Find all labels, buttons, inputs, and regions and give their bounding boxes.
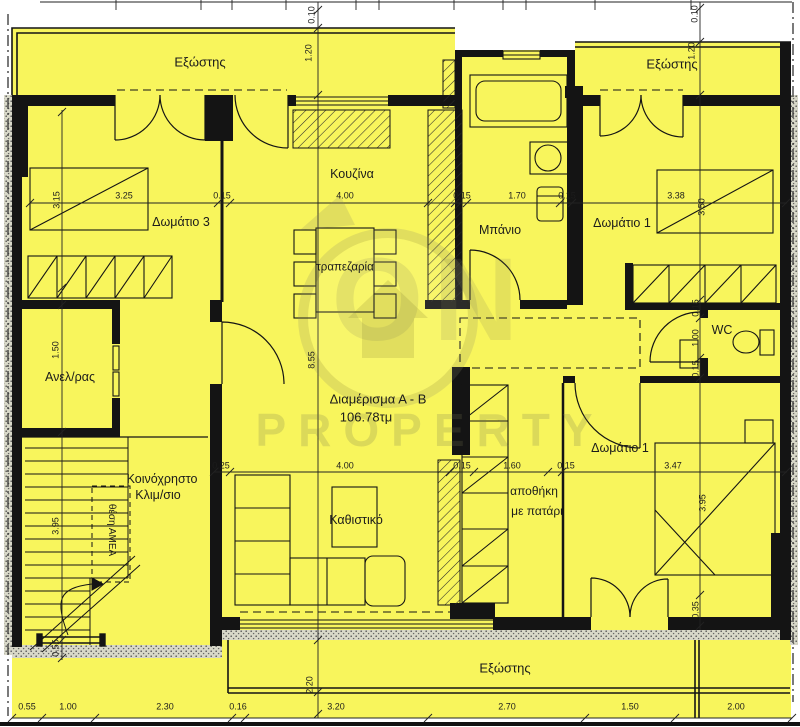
- stairwell-line1-label: Κοινόχρηστο: [127, 473, 198, 486]
- dimension-label: 1.70: [508, 192, 526, 201]
- dimension-label: 1.50: [52, 341, 61, 359]
- dimension-label: 3.50: [698, 198, 707, 216]
- dimension-label: 0.55: [18, 703, 36, 712]
- watermark-on-text: ON: [332, 232, 529, 368]
- storage-line1-label: αποθήκη: [510, 485, 558, 497]
- dimension-label: 2.30: [156, 703, 174, 712]
- dimension-label: 8.55: [308, 351, 317, 369]
- dining-label: τραπεζαρία: [316, 262, 374, 274]
- dimension-label: 3.38: [667, 192, 685, 201]
- watermark-property-text: PROPERTY: [255, 403, 604, 457]
- elevator-label: Ανελ/ρας: [45, 371, 95, 384]
- dimension-label: 3.25: [115, 192, 133, 201]
- dimension-label: 0.15: [692, 299, 701, 317]
- dimension-label: 0.16: [229, 703, 247, 712]
- dimension-label: 0.10: [691, 5, 700, 23]
- dimension-label: 3.95: [699, 494, 708, 512]
- dimension-label: 4.00: [336, 192, 354, 201]
- balcony-top-left-label: Εξώστης: [174, 56, 225, 69]
- dimension-label: 1.00: [692, 329, 701, 347]
- dimension-label: 4.00: [336, 462, 354, 471]
- dimension-label: 3.20: [327, 703, 345, 712]
- storage-shaft: [438, 460, 460, 605]
- stairwell-line2-label: Κλιμ/σιο: [135, 489, 180, 502]
- dimension-label: 1.00: [59, 703, 77, 712]
- dimension-label: 1.50: [621, 703, 639, 712]
- balcony-top-left-area: [12, 28, 455, 95]
- dimension-label: 0.15: [453, 192, 471, 201]
- dimension-label: 2.00: [727, 703, 745, 712]
- dimension-label: 0.15: [558, 192, 576, 201]
- dimension-label: 0.35: [692, 601, 701, 619]
- top-tick-row: [40, 0, 792, 10]
- apartment-area-label: 106.78τμ: [340, 411, 392, 424]
- dimension-label: 1.20: [305, 44, 314, 62]
- dimension-label: 0.10: [308, 6, 317, 24]
- kitchen-label: Κουζίνα: [330, 168, 374, 181]
- dimension-label: 0.15: [453, 462, 471, 471]
- dimension-label: 3.47: [664, 462, 682, 471]
- floor-plan-page: ON PROPERTY ΕξώστηςΕξώστηςΕξώστηςΔωμάτιο…: [0, 0, 800, 727]
- bedroom-1-top-label: Δωμάτιο 1: [593, 217, 651, 230]
- wc-label: WC: [712, 324, 733, 337]
- dimension-label: 2.70: [498, 703, 516, 712]
- storage-line2-label: με πατάρι: [511, 505, 563, 517]
- living-room-label: Καθιστικό: [329, 514, 383, 527]
- dimension-label: 0.15: [692, 360, 701, 378]
- dimension-label: 0.55: [52, 639, 61, 657]
- bedroom-1-bottom-label: Δωμάτιο 1: [591, 442, 649, 455]
- dimension-label: 3.15: [53, 191, 62, 209]
- bedroom-3-label: Δωμάτιο 3: [152, 216, 210, 229]
- dimension-label: 2.20: [306, 676, 315, 694]
- balcony-bottom-label: Εξώστης: [479, 662, 530, 675]
- amea-spot-label: θέση ΑΜΕΑ: [106, 504, 116, 556]
- bottom-border-line: [0, 722, 800, 726]
- dimension-label: 1.60: [503, 462, 521, 471]
- dimension-label: 1.20: [688, 42, 697, 60]
- dimension-label: 0.15: [557, 462, 575, 471]
- apartment-title-label: Διαμέρισμα Α - Β: [330, 393, 427, 406]
- kitchen-counter: [293, 110, 390, 148]
- bathroom-label: Μπάνιο: [479, 224, 521, 237]
- dimension-label: 0.15: [213, 192, 231, 201]
- dimension-label: 3.95: [52, 517, 61, 535]
- dimension-label: 0.25: [212, 462, 230, 471]
